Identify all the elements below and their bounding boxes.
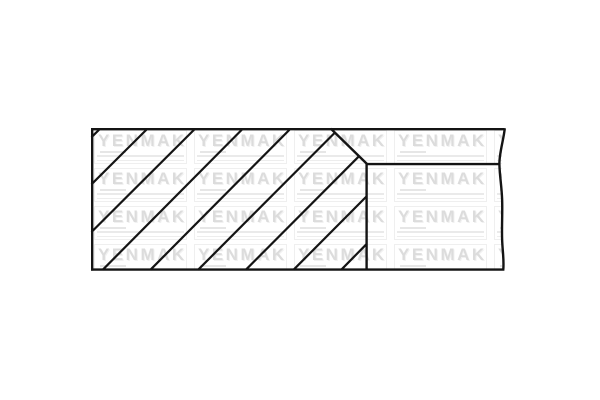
hatch-line xyxy=(246,156,359,269)
hatch-line xyxy=(294,196,367,270)
product-diagram: YENMAKYENMAKYENMAKYENMAKYENMAKYENMAKYENM… xyxy=(0,0,600,400)
break-line-wavy-edge xyxy=(499,128,504,269)
hatch-line xyxy=(341,244,367,270)
ring-chamfer-edge xyxy=(331,129,367,164)
hatch-line xyxy=(92,130,147,185)
ring-cross-section-drawing xyxy=(0,0,600,400)
hatch-line xyxy=(92,130,195,232)
